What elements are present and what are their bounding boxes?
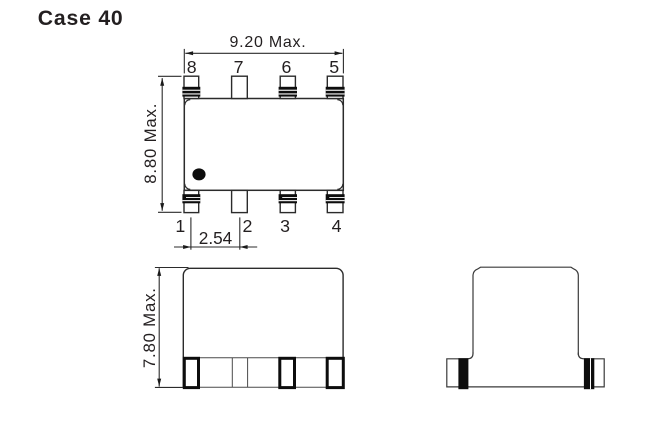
svg-text:2.54: 2.54: [199, 228, 233, 248]
svg-text:4: 4: [332, 216, 342, 236]
svg-text:1: 1: [175, 216, 185, 236]
svg-text:Case 40: Case 40: [38, 7, 124, 30]
svg-text:9.20 Max.: 9.20 Max.: [229, 34, 306, 51]
svg-text:6: 6: [282, 57, 292, 77]
svg-text:3: 3: [280, 216, 290, 236]
svg-text:5: 5: [329, 57, 339, 77]
svg-text:8: 8: [187, 57, 197, 77]
svg-text:8.80 Max.: 8.80 Max.: [141, 103, 160, 184]
svg-text:7.80 Max.: 7.80 Max.: [140, 287, 159, 368]
svg-text:2: 2: [242, 216, 252, 236]
svg-text:7: 7: [234, 57, 244, 77]
